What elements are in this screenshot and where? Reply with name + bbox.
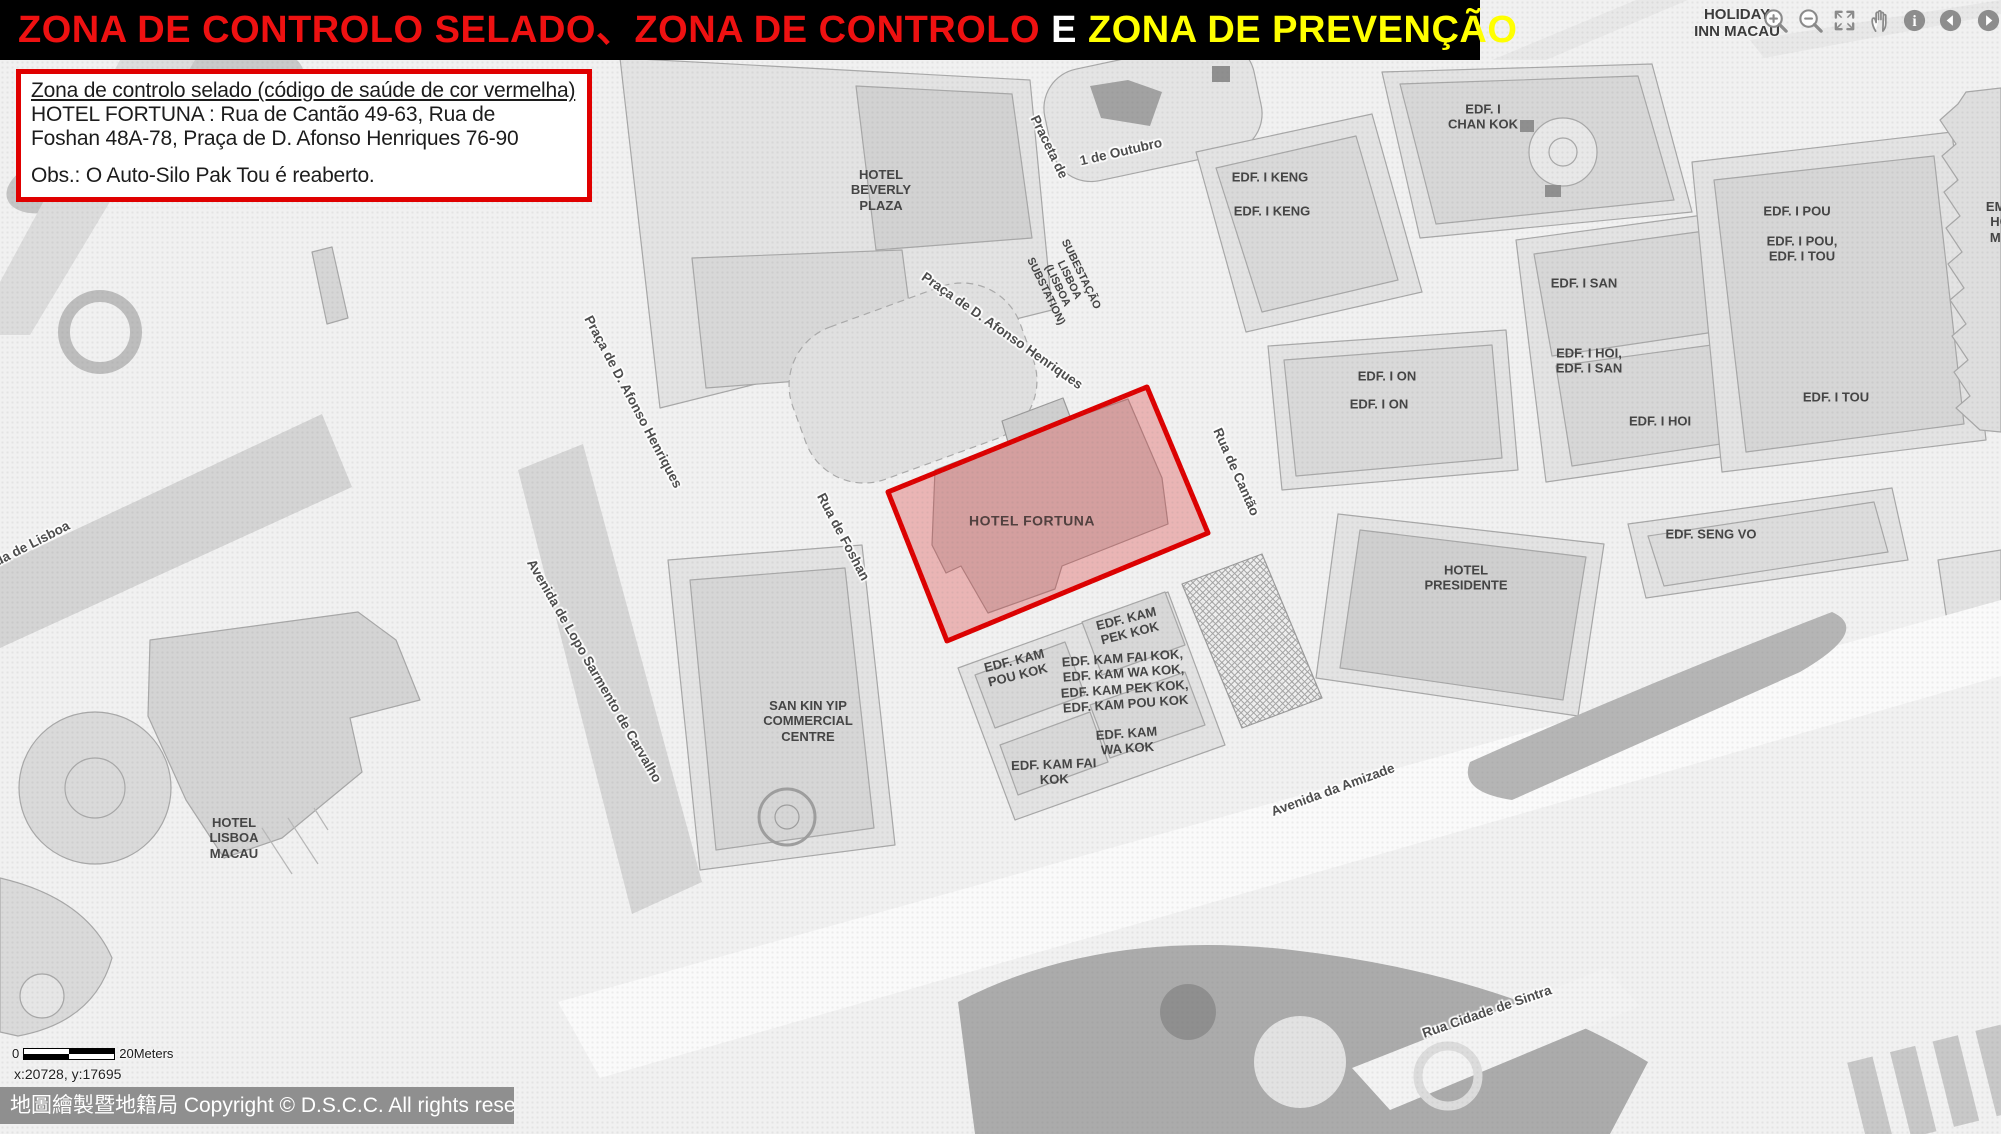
zoom-in-button[interactable] [1762, 7, 1789, 34]
fullscreen-icon [1831, 7, 1858, 34]
map-label: EDF. I KENG [1232, 169, 1309, 184]
info-box-note: Obs.: O Auto-Silo Pak Tou é reaberto. [31, 164, 577, 188]
map-label: EDF. KAMPOU KOK [983, 646, 1050, 691]
map-label: EDF. I ON [1350, 396, 1409, 411]
map-label: EDF. I POU,EDF. I TOU [1767, 234, 1838, 265]
map-label: EDF. I HOI,EDF. I SAN [1556, 346, 1622, 377]
map-label: EDF. I POU [1763, 203, 1830, 218]
info-icon: i [1901, 7, 1928, 34]
map-label: EDF. SENG VO [1665, 526, 1756, 541]
map-label: SUBESTAÇÃOLISBOA(LISBOASUBSTATION) [1023, 237, 1103, 328]
info-box-address-line2: Foshan 48A-78, Praça de D. Afonso Henriq… [31, 127, 577, 151]
map-label: EDF. KAMPEK KOK [1095, 604, 1162, 649]
pan-hand-icon [1866, 7, 1893, 34]
map-label: EDF. I ON [1358, 368, 1417, 383]
map-label: HOTELLISBOAMACAU [209, 815, 258, 861]
map-label: Avenida da Amizade [1269, 760, 1397, 820]
info-button[interactable]: i [1901, 7, 1928, 34]
cursor-coordinates: x:20728, y:17695 [14, 1066, 121, 1082]
title-bar: ZONA DE CONTROLO SELADO、ZONA DE CONTROLO… [0, 0, 1480, 60]
title-segment-red: ZONA DE CONTROLO SELADO、ZONA DE CONTROLO [18, 9, 1051, 51]
map-label: EDF. KAM FAI KOK,EDF. KAM WA KOK,EDF. KA… [1058, 646, 1190, 716]
title-segment-white: E [1051, 9, 1077, 51]
info-box-heading: Zona de controlo selado (código de saúde… [31, 79, 577, 103]
info-box-spacer [31, 151, 577, 164]
zoom-out-icon [1797, 7, 1824, 34]
map-label: EDF. I SAN [1551, 275, 1617, 290]
title-segment-yellow: ZONA DE PREVENÇÃO [1077, 9, 1517, 51]
map-label: Rua de Foshan [813, 491, 872, 584]
map-label: EDF. I TOU [1803, 389, 1869, 404]
map-label: EDF. ICHAN KOK [1448, 102, 1518, 133]
zoom-in-icon [1762, 7, 1789, 34]
legend-info-box: Zona de controlo selado (código de saúde… [16, 69, 592, 202]
map-label: HOTELPRESIDENTE [1424, 563, 1507, 594]
forward-arrow-icon [1975, 7, 2001, 34]
map-application: HOTELBEVERLYPLAZAPraceta de1 de OutubroS… [0, 0, 2001, 1134]
map-label: Rua de Cantão [1210, 426, 1263, 519]
map-label: Praça de D. Afonso Henriques [581, 313, 686, 491]
pan-button[interactable] [1866, 7, 1893, 34]
map-label: HOTEL FORTUNA [969, 513, 1095, 530]
map-label: EDF. KAMWA KOK [1095, 724, 1158, 759]
scale-zero: 0 [12, 1046, 19, 1061]
scale-bar: 0 20Meters [12, 1046, 173, 1061]
map-label: HOTELBEVERLYPLAZA [851, 167, 911, 213]
zoom-out-button[interactable] [1797, 7, 1824, 34]
map-label: Avenida de Lisboa [0, 518, 73, 586]
info-box-address-line1: HOTEL FORTUNA : Rua de Cantão 49-63, Rua… [31, 103, 577, 127]
map-label: EMPHOMA [1986, 199, 2001, 245]
map-label: EDF. I HOI [1629, 413, 1691, 428]
map-label: EDF. I KENG [1234, 203, 1311, 218]
map-label: Avenida de Lopo Sarmento de Carvalho [523, 556, 664, 785]
map-label: Praceta de [1027, 113, 1071, 181]
map-label: EDF. KAM FAIKOK [1011, 755, 1097, 789]
forward-button[interactable] [1975, 7, 2001, 34]
map-label: 1 de Outubro [1078, 135, 1163, 169]
svg-text:i: i [1912, 13, 1917, 30]
copyright-bar: 地圖繪製暨地籍局 Copyright © D.S.C.C. All rights… [0, 1087, 514, 1124]
back-arrow-icon [1937, 7, 1964, 34]
back-button[interactable] [1937, 7, 1964, 34]
map-label: SAN KIN YIPCOMMERCIALCENTRE [763, 698, 853, 744]
scale-distance-label: 20Meters [119, 1046, 173, 1061]
fullscreen-button[interactable] [1831, 7, 1858, 34]
map-label: Rua Cidade de Sintra [1420, 982, 1554, 1041]
scale-bar-graphic [23, 1048, 115, 1060]
